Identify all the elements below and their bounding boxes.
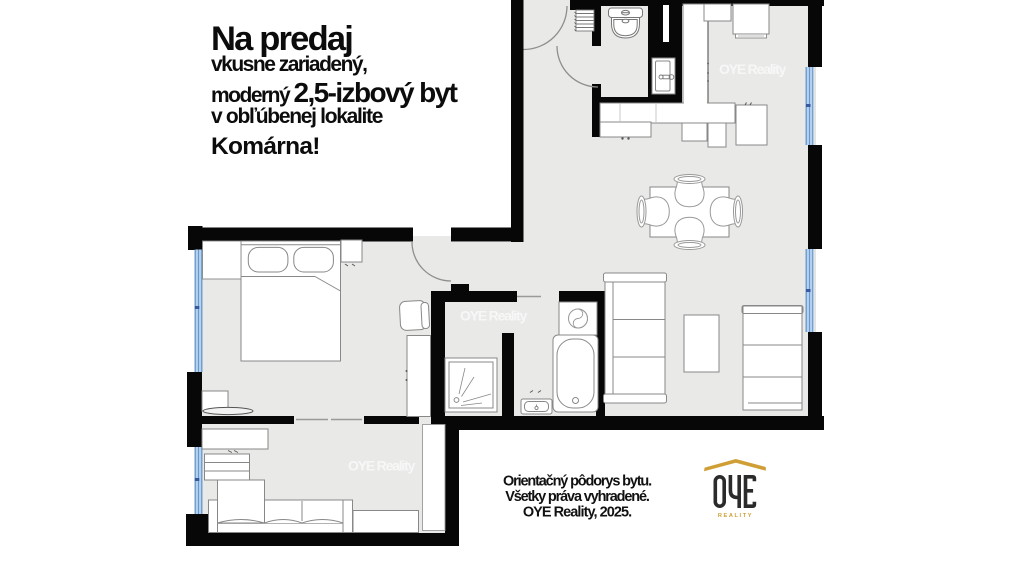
svg-text:Všetky práva vyhradené.: Všetky práva vyhradené. (505, 489, 650, 505)
svg-text:vkusne zariadený,: vkusne zariadený, (211, 53, 367, 76)
svg-text:Orientačný pôdorys bytu.: Orientačný pôdorys bytu. (503, 474, 652, 490)
svg-text:v obľúbenej lokalite: v obľúbenej lokalite (211, 105, 383, 128)
svg-text:OYE Reality, 2025.: OYE Reality, 2025. (523, 505, 632, 521)
svg-text:REALITY: REALITY (718, 513, 753, 519)
svg-text:OYE Reality: OYE Reality (460, 308, 528, 324)
svg-text:Komárna!: Komárna! (211, 133, 320, 160)
svg-text:OYE Reality: OYE Reality (719, 61, 787, 77)
svg-text:OYE Reality: OYE Reality (348, 458, 416, 474)
